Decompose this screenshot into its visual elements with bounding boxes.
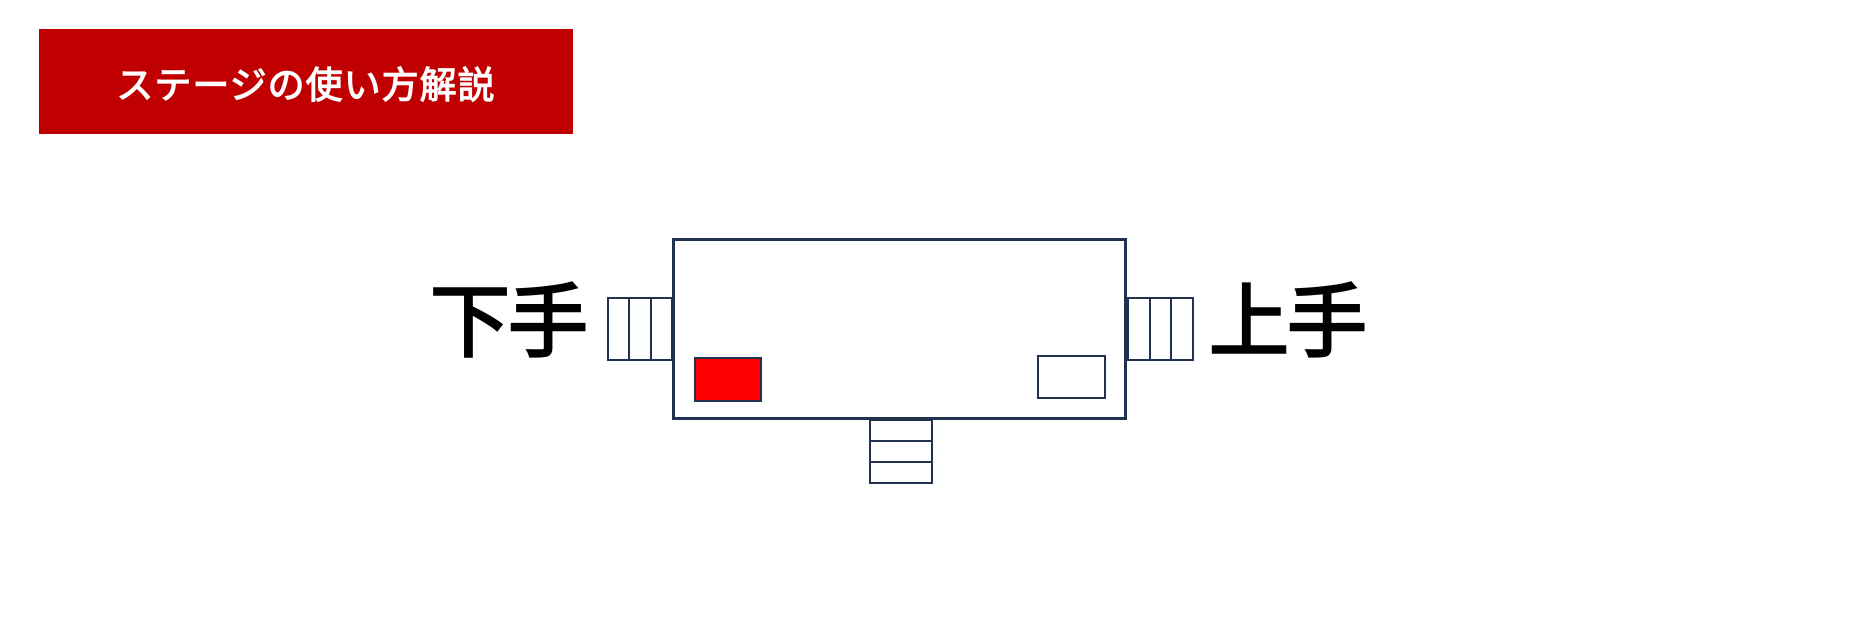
stair-step (1149, 299, 1171, 359)
stair-step (650, 299, 671, 359)
red-position-marker (694, 357, 762, 402)
slide-canvas: ステージの使い方解説 下手 上手 (0, 0, 1865, 619)
page-title: ステージの使い方解説 (116, 55, 495, 109)
stair-step (871, 421, 931, 440)
stairs-left (607, 297, 673, 361)
stair-step (871, 440, 931, 461)
title-banner: ステージの使い方解説 (39, 29, 573, 134)
stage-left-label: 下手 (430, 281, 586, 365)
white-position-marker (1037, 355, 1106, 399)
stairs-front (869, 419, 933, 484)
stair-step (1129, 299, 1149, 359)
stage-right-label: 上手 (1209, 281, 1365, 365)
stair-step (871, 461, 931, 482)
stair-step (1170, 299, 1192, 359)
stair-step (628, 299, 649, 359)
stairs-right (1127, 297, 1194, 361)
stair-step (609, 299, 628, 359)
